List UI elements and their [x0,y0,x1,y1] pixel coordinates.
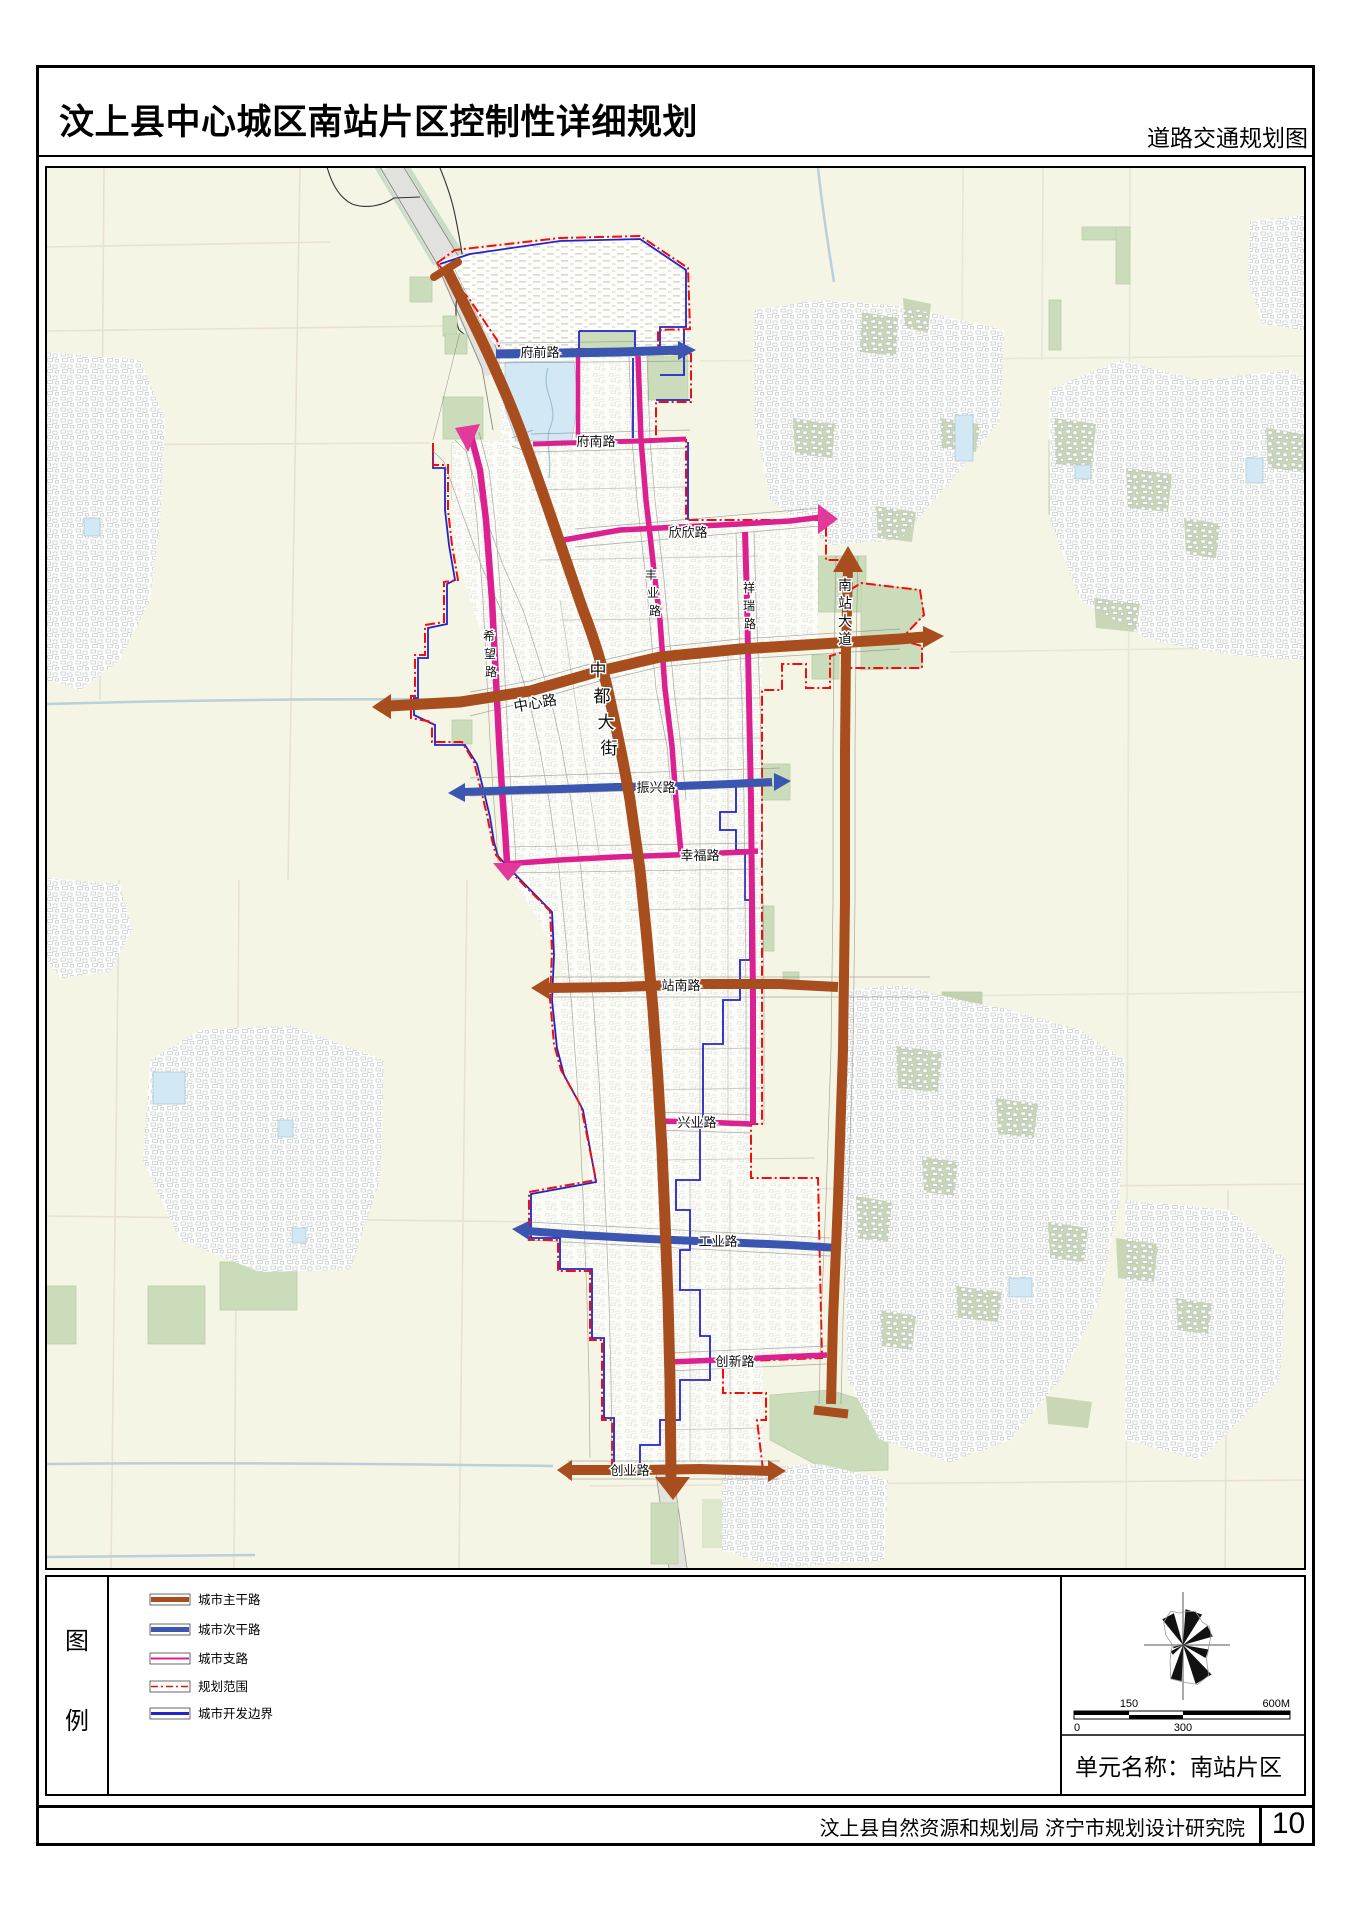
svg-text:望: 望 [484,647,496,661]
svg-text:路: 路 [649,603,661,618]
svg-text:祥: 祥 [743,581,755,595]
svg-text:兴业路: 兴业路 [677,1115,716,1130]
svg-text:欣欣路: 欣欣路 [668,525,707,540]
svg-text:大: 大 [838,613,852,629]
svg-text:站: 站 [838,595,852,611]
svg-text:丰: 丰 [645,568,657,582]
svg-text:150: 150 [1120,1698,1138,1710]
svg-text:城市支路: 城市支路 [198,1651,249,1666]
svg-text:300: 300 [1174,1722,1192,1734]
svg-text:幸福路: 幸福路 [680,848,719,863]
svg-text:城市主干路: 城市主干路 [198,1592,261,1607]
svg-text:府南路: 府南路 [576,434,615,449]
svg-text:路: 路 [744,616,756,631]
svg-text:大: 大 [598,713,615,732]
svg-text:创业路: 创业路 [610,1463,649,1478]
svg-text:瑞: 瑞 [743,599,755,613]
svg-text:街: 街 [601,739,618,758]
svg-text:规划范围: 规划范围 [198,1679,248,1694]
svg-text:府前路: 府前路 [520,345,559,360]
svg-text:站南路: 站南路 [661,978,700,993]
svg-text:城市开发边界: 城市开发边界 [198,1706,274,1721]
svg-text:工业路: 工业路 [698,1234,737,1249]
svg-text:希: 希 [483,628,495,643]
svg-text:路: 路 [485,664,497,679]
svg-text:创新路: 创新路 [715,1354,754,1369]
svg-text:中: 中 [590,661,607,680]
svg-text:600M: 600M [1262,1698,1290,1710]
svg-text:都: 都 [594,687,611,706]
svg-text:业: 业 [647,586,659,600]
svg-text:振兴路: 振兴路 [636,780,675,795]
svg-text:城市次干路: 城市次干路 [198,1622,261,1637]
svg-text:道: 道 [838,631,852,647]
svg-text:南: 南 [838,577,852,593]
svg-text:0: 0 [1074,1722,1080,1734]
